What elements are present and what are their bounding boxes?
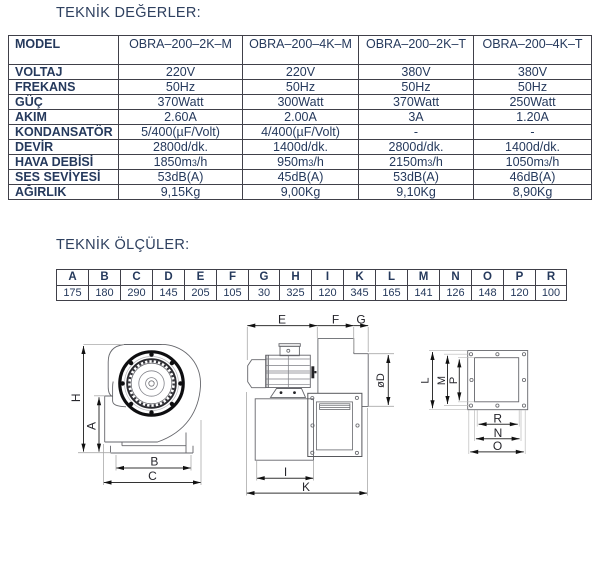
svg-text:L: L	[420, 377, 432, 383]
svg-text:O: O	[493, 439, 502, 453]
svg-text:M: M	[436, 376, 448, 385]
svg-text:øD: øD	[375, 373, 387, 388]
svg-text:I: I	[284, 465, 287, 479]
svg-text:E: E	[278, 312, 286, 326]
svg-text:K: K	[302, 480, 310, 494]
svg-text:H: H	[69, 393, 83, 402]
svg-text:B: B	[150, 455, 158, 469]
svg-text:G: G	[356, 312, 365, 326]
svg-text:N: N	[494, 426, 503, 440]
svg-text:P: P	[448, 377, 460, 384]
svg-text:A: A	[84, 422, 98, 430]
svg-text:R: R	[493, 412, 502, 426]
svg-text:F: F	[332, 312, 339, 326]
svg-text:C: C	[148, 469, 157, 483]
